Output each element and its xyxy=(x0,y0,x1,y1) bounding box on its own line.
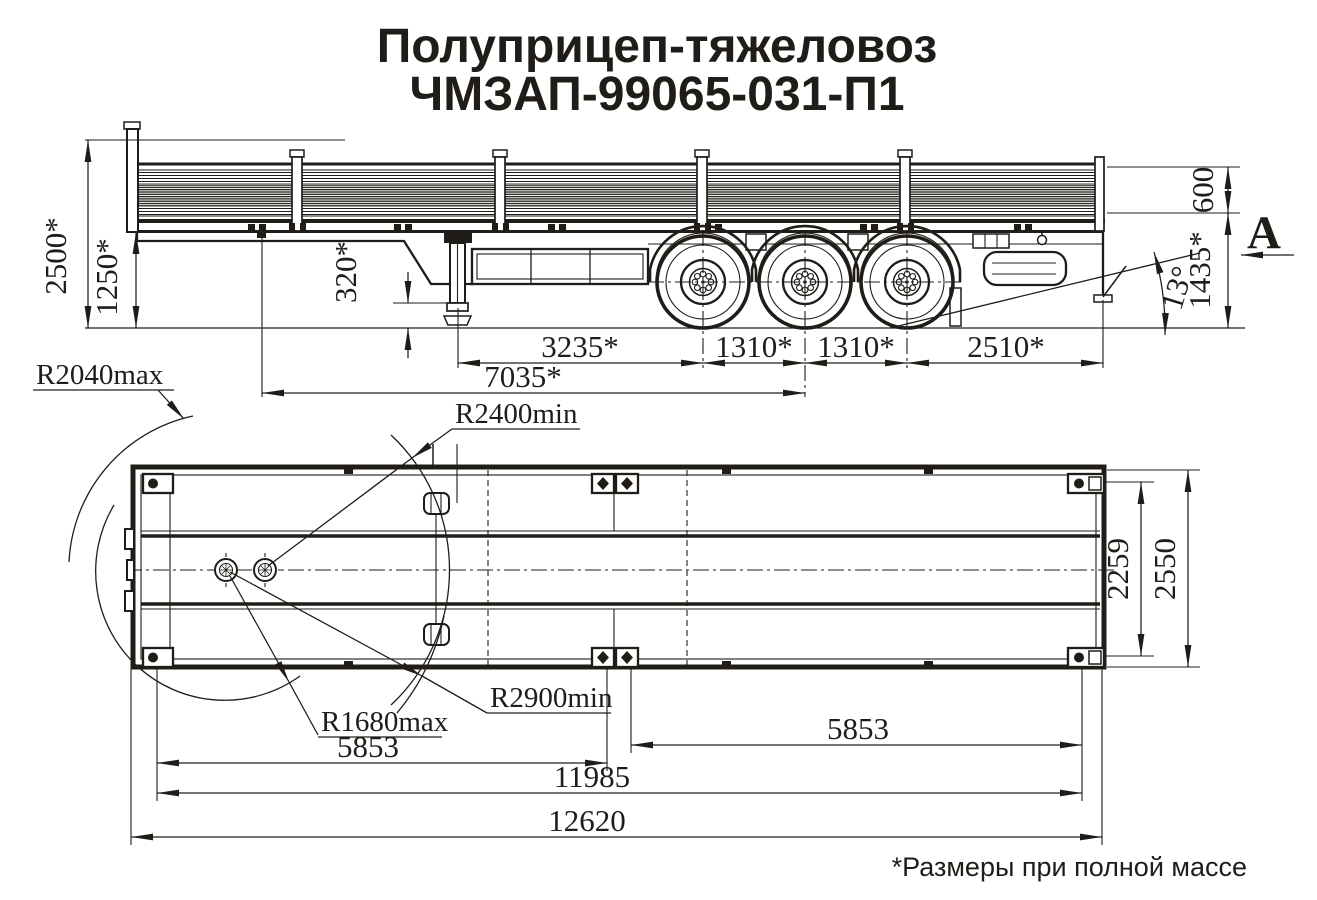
rear-steps xyxy=(984,252,1066,285)
dim-r-front-swing-max: R2040max xyxy=(36,359,164,391)
platform-outline xyxy=(133,467,1104,667)
rear-equipment xyxy=(973,232,1126,302)
dim-overall-width: 2550 xyxy=(1147,538,1182,600)
side-board-panel-band xyxy=(139,183,1103,207)
view-a-marker: A xyxy=(1241,207,1294,259)
title-line-1: Полуприцеп-тяжеловоз xyxy=(377,20,937,73)
view-a-label: A xyxy=(1247,207,1281,259)
side-view: 13° 2500* 1250* 320* 3235* 1310* 1310* 2… xyxy=(38,122,1294,397)
dim-overall-length: 12620 xyxy=(548,803,626,838)
blueprint-canvas: Полуприцеп-тяжеловоз ЧМЗАП-99065-031-П1 xyxy=(0,0,1317,900)
dim-platform-height: 1435* xyxy=(1182,231,1217,309)
dim-r-rear-clearance-min: R2900min xyxy=(490,682,613,714)
blueprint-page: Полуприцеп-тяжеловоз ЧМЗАП-99065-031-П1 xyxy=(0,0,1317,900)
dim-overall-height: 2500* xyxy=(38,217,73,295)
dim-section-rear: 5853 xyxy=(827,711,889,746)
toolbox xyxy=(973,234,1009,248)
front-post-cap xyxy=(124,122,140,129)
page-title: Полуприцеп-тяжеловоз ЧМЗАП-99065-031-П1 xyxy=(377,20,937,121)
tow-ring xyxy=(1038,236,1047,245)
top-view: R2040max R2400min R2900min R1680max xyxy=(33,359,1200,845)
front-post xyxy=(127,129,138,232)
chassis-frame xyxy=(137,231,1103,284)
title-line-2: ЧМЗАП-99065-031-П1 xyxy=(409,68,904,121)
dim-inner-width: 2259 xyxy=(1100,538,1135,600)
dim-section-front: 5853 xyxy=(337,729,399,764)
support-clearance-dim: 320* xyxy=(328,241,408,358)
dim-support-clearance: 320* xyxy=(328,241,363,303)
dim-kingpin-to-bogie: 7035* xyxy=(484,359,562,394)
side-boards xyxy=(136,164,1105,232)
gooseneck-profile xyxy=(137,232,473,284)
kingpin-mark xyxy=(257,231,266,238)
dim-axle2-axle3: 1310* xyxy=(817,329,895,364)
dim-r-front-clearance-min: R2400min xyxy=(455,398,578,430)
landing-leg xyxy=(393,232,472,325)
footnote: *Размеры при полной массе xyxy=(892,852,1247,882)
dim-front-frame-height: 1250* xyxy=(89,238,124,316)
dim-frame-length: 11985 xyxy=(554,759,630,794)
front-bumper-blocks xyxy=(125,529,134,611)
rear-post xyxy=(1095,157,1104,231)
dim-axle1-axle2: 1310* xyxy=(715,329,793,364)
dim-board-height: 600 xyxy=(1185,167,1220,214)
dim-axle3-rear: 2510* xyxy=(967,329,1045,364)
radius-r2040max: R2040max xyxy=(33,359,184,419)
